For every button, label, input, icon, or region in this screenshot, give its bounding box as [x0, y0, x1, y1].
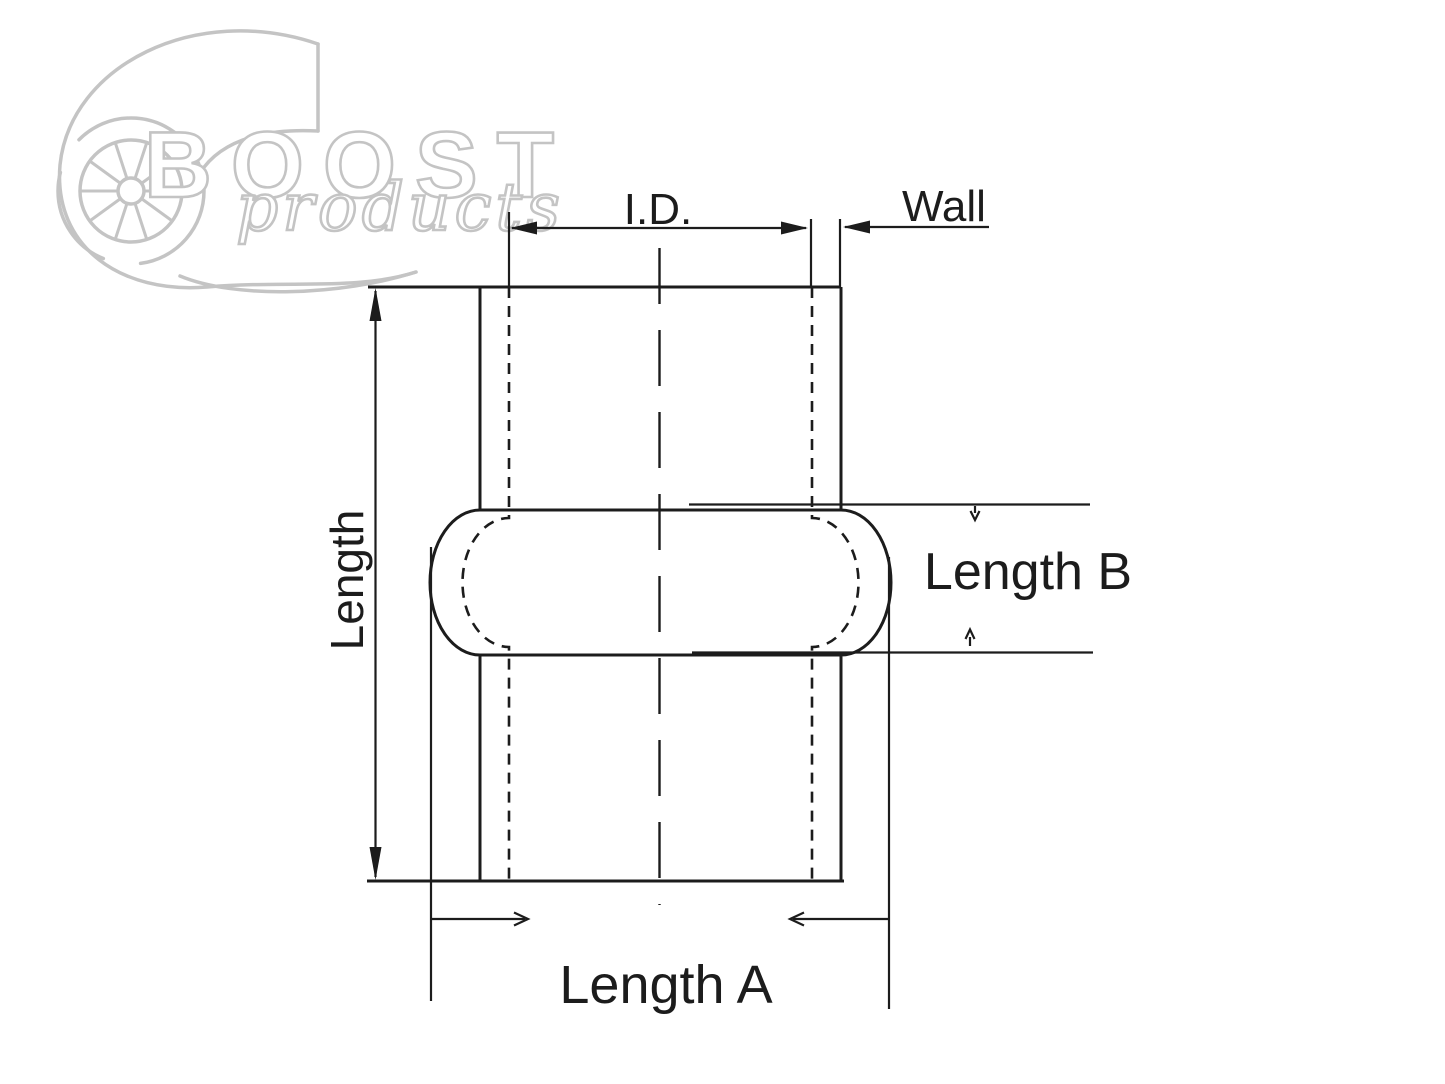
hump-coupler-dimension-drawing: BOOST products I.D. Wall Length	[0, 0, 1445, 1084]
dimension-length: Length	[321, 288, 381, 880]
length-a-label: Length A	[559, 955, 772, 1015]
length-label: Length	[321, 510, 373, 651]
dimension-wall: Wall	[843, 182, 989, 234]
id-label: I.D.	[624, 185, 692, 234]
tube-left-profile	[430, 287, 480, 881]
turbo-wheel-hub	[118, 178, 144, 204]
wall-label: Wall	[902, 182, 986, 231]
length-arrowhead-top	[370, 288, 382, 321]
page: { "canvas": { "width": 1445, "height": 1…	[0, 0, 1445, 1084]
boost-products-logo: BOOST products	[58, 31, 560, 292]
tube-right-profile	[841, 287, 891, 881]
length-arrowhead-bottom	[370, 847, 382, 880]
id-arrowhead-right	[781, 222, 808, 235]
logo-sub-brand-text: products	[236, 169, 560, 246]
inner-wall-right	[812, 287, 859, 881]
turbo-volute-tail	[180, 272, 416, 292]
wall-arrowhead	[843, 221, 870, 234]
length-b-label: Length B	[924, 543, 1132, 601]
dimension-length-b: Length B	[689, 505, 1132, 653]
inner-wall-left	[463, 287, 510, 881]
